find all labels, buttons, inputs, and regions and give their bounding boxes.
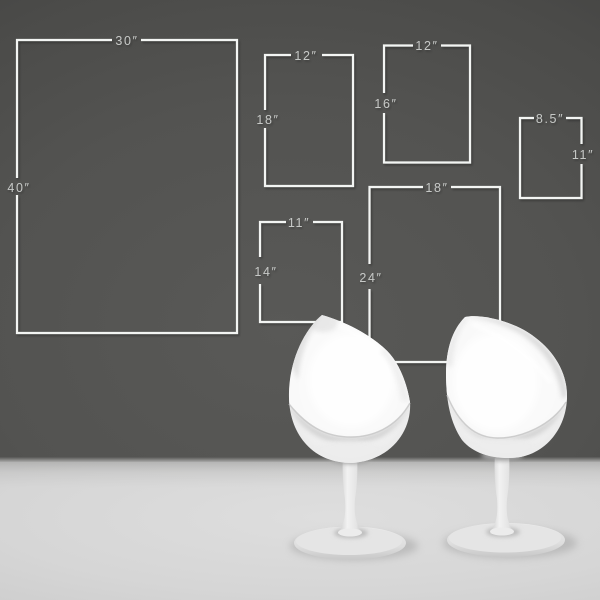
svg-text:18″: 18″ (425, 181, 448, 195)
svg-text:11″: 11″ (288, 216, 310, 230)
svg-text:8.5″: 8.5″ (536, 112, 564, 126)
svg-text:24″: 24″ (359, 271, 382, 285)
svg-text:14″: 14″ (254, 265, 277, 279)
svg-text:12″: 12″ (294, 49, 317, 63)
svg-text:30″: 30″ (115, 34, 138, 48)
svg-text:11″: 11″ (572, 148, 594, 162)
svg-text:18″: 18″ (256, 113, 279, 127)
svg-text:12″: 12″ (415, 39, 438, 53)
svg-text:16″: 16″ (374, 97, 397, 111)
svg-text:40″: 40″ (7, 181, 30, 195)
